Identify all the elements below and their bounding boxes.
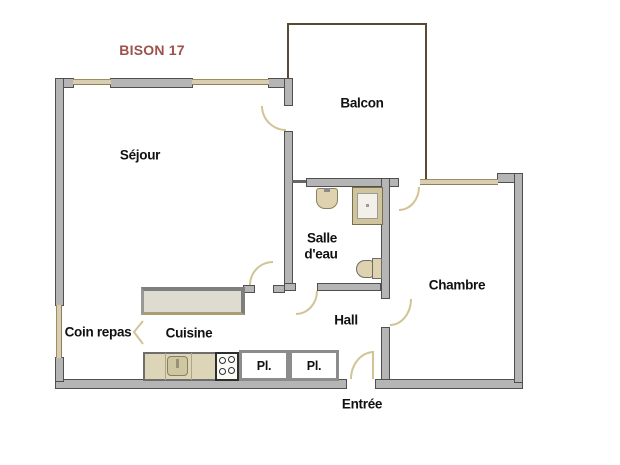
door-arc-chambre-balcon xyxy=(399,187,420,211)
window xyxy=(56,305,62,358)
window xyxy=(420,179,498,185)
door-arc-sejour-balcon xyxy=(261,106,286,131)
room-label-hall: Hall xyxy=(334,313,358,328)
closet-label-right: Pl. xyxy=(307,359,321,373)
wall-segment xyxy=(273,285,285,293)
room-label-chambre: Chambre xyxy=(429,278,485,293)
wall-segment xyxy=(317,283,381,291)
balcony-outline-top xyxy=(287,23,427,25)
burner-icon xyxy=(219,368,226,375)
room-label-salle-eau-1: Salle xyxy=(307,231,337,246)
window xyxy=(192,79,269,85)
room-label-balcon: Balcon xyxy=(340,96,383,111)
balcony-outline-left xyxy=(287,24,289,79)
floor-plan: BISON 17 xyxy=(0,0,620,465)
balcony-outline-right xyxy=(425,24,427,180)
burner-icon xyxy=(228,367,235,374)
washbasin-faucet-icon xyxy=(324,188,330,192)
wall-segment xyxy=(110,78,193,88)
door-leaf-entree xyxy=(372,351,374,379)
wall-segment xyxy=(284,131,293,291)
window xyxy=(73,79,111,85)
counter-divider xyxy=(191,353,192,380)
counter-icon xyxy=(141,287,245,315)
wall-segment xyxy=(284,283,296,291)
door-arc-entree xyxy=(350,351,374,379)
room-divider-zigzag xyxy=(129,319,147,346)
kitchen-sink-faucet-icon xyxy=(176,359,179,368)
plan-title: BISON 17 xyxy=(119,42,184,58)
stove-icon xyxy=(215,352,239,381)
toilet-bowl-icon xyxy=(356,260,373,278)
room-label-entree: Entrée xyxy=(342,397,382,412)
toilet-tank-icon xyxy=(372,258,382,279)
wall-segment xyxy=(284,78,293,106)
closet-label-left: Pl. xyxy=(257,359,271,373)
door-arc-sejour-hall xyxy=(249,261,273,285)
counter-divider xyxy=(165,353,166,380)
burner-icon xyxy=(219,357,226,364)
room-label-salle-eau-2: d'eau xyxy=(304,247,337,262)
door-arc-salle-eau xyxy=(296,291,318,315)
wall-segment xyxy=(55,78,64,306)
shower-drain-icon xyxy=(366,204,369,207)
wall-segment xyxy=(381,327,390,380)
room-label-sejour: Séjour xyxy=(120,148,160,163)
room-label-coin-repas: Coin repas xyxy=(65,325,132,340)
wall-segment xyxy=(514,173,523,383)
door-arc-chambre xyxy=(390,299,412,326)
wall-segment xyxy=(55,357,64,382)
burner-icon xyxy=(228,356,235,363)
wall-segment xyxy=(375,379,523,389)
room-label-cuisine: Cuisine xyxy=(166,326,213,341)
